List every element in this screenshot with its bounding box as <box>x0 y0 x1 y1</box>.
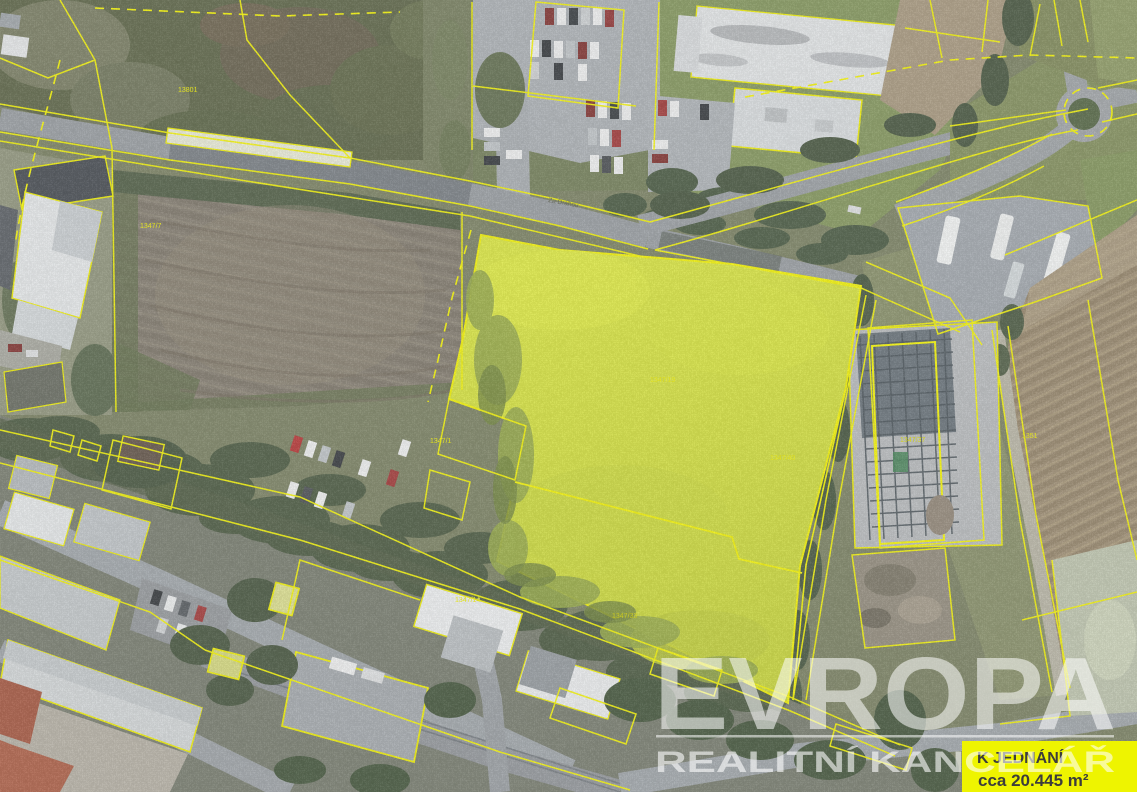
svg-text:EVROPA: EVROPA <box>654 636 1116 751</box>
svg-text:REALITNÍ KANCELÁŘ: REALITNÍ KANCELÁŘ <box>655 745 1115 779</box>
